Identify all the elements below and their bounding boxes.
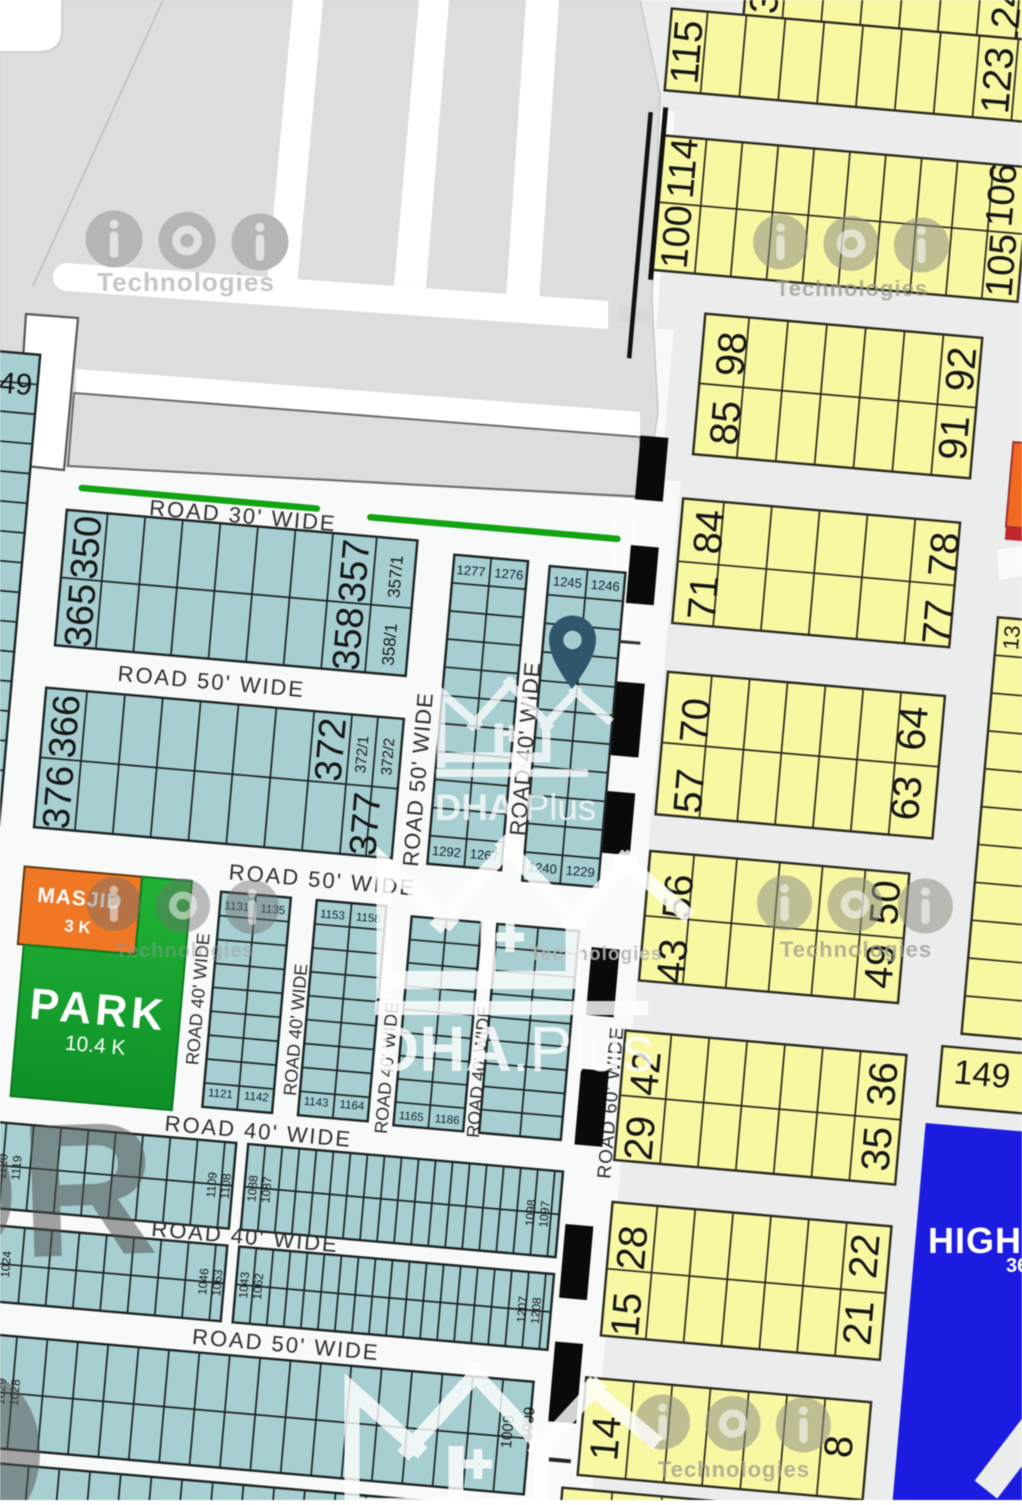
- svg-text:1208: 1208: [528, 1296, 544, 1324]
- svg-text:357: 357: [331, 538, 378, 605]
- svg-text:Technologies: Technologies: [115, 940, 254, 962]
- svg-text:29: 29: [616, 1114, 664, 1162]
- svg-text:1292: 1292: [431, 843, 461, 860]
- svg-text:Technologies: Technologies: [97, 267, 275, 297]
- svg-text:357/1: 357/1: [384, 555, 407, 599]
- svg-text:1164: 1164: [339, 1099, 365, 1113]
- svg-text:13: 13: [998, 624, 1022, 651]
- svg-text:1186: 1186: [434, 1113, 460, 1127]
- svg-text:36: 36: [859, 1060, 907, 1108]
- svg-text:372: 372: [308, 716, 355, 783]
- svg-text:1276: 1276: [494, 565, 524, 582]
- svg-text:149: 149: [952, 1053, 1012, 1096]
- svg-text:1063: 1063: [209, 1269, 225, 1297]
- svg-text:350: 350: [63, 514, 110, 581]
- svg-text:15: 15: [603, 1291, 651, 1339]
- svg-text:70: 70: [672, 696, 720, 744]
- svg-text:1229: 1229: [565, 863, 595, 880]
- svg-text:84: 84: [685, 508, 733, 556]
- svg-text:1087: 1087: [258, 1176, 274, 1204]
- svg-text:63: 63: [883, 774, 931, 822]
- svg-text:106: 106: [978, 162, 1022, 229]
- svg-text:1153: 1153: [320, 908, 346, 922]
- svg-text:Technologies: Technologies: [780, 937, 932, 962]
- svg-text:1097: 1097: [536, 1200, 552, 1228]
- svg-text:3 K: 3 K: [64, 916, 93, 937]
- svg-text:DHA.Plus: DHA.Plus: [373, 1013, 654, 1085]
- svg-text:1246: 1246: [590, 577, 620, 594]
- svg-text:1245: 1245: [552, 573, 582, 590]
- svg-text:28: 28: [609, 1224, 657, 1272]
- svg-text:Technologies: Technologies: [529, 944, 662, 965]
- svg-text:372/2: 372/2: [378, 737, 398, 776]
- svg-text:115: 115: [662, 18, 711, 85]
- svg-text:114: 114: [660, 136, 707, 200]
- svg-text:1277: 1277: [456, 562, 486, 579]
- svg-text:377: 377: [342, 791, 389, 858]
- svg-text:365: 365: [57, 582, 104, 649]
- svg-text:Technologies: Technologies: [658, 1457, 810, 1482]
- svg-text:358: 358: [325, 605, 372, 672]
- svg-text:358/1: 358/1: [378, 622, 401, 666]
- svg-text:71: 71: [680, 574, 728, 622]
- svg-text:92: 92: [938, 345, 986, 393]
- svg-text:OR: OR: [0, 1082, 160, 1304]
- svg-text:78: 78: [920, 530, 968, 578]
- svg-text:49: 49: [0, 366, 34, 402]
- svg-text:1143: 1143: [303, 1096, 329, 1110]
- svg-text:91: 91: [931, 414, 979, 462]
- svg-text:1108: 1108: [218, 1172, 234, 1199]
- svg-text:85: 85: [702, 399, 750, 447]
- svg-text:366: 366: [42, 693, 89, 760]
- svg-text:98: 98: [708, 330, 756, 378]
- svg-text:77: 77: [914, 598, 962, 646]
- svg-text:21: 21: [835, 1299, 883, 1347]
- svg-text:1165: 1165: [398, 1110, 424, 1124]
- svg-text:57: 57: [666, 767, 714, 815]
- svg-text:Technologies: Technologies: [776, 276, 928, 301]
- svg-text:376: 376: [35, 764, 82, 831]
- svg-text:1121: 1121: [208, 1087, 234, 1101]
- svg-text:105: 105: [978, 232, 1022, 299]
- svg-text:100: 100: [654, 204, 701, 271]
- svg-text:DHA.Plus: DHA.Plus: [435, 787, 596, 828]
- svg-text:372/1: 372/1: [352, 735, 372, 774]
- svg-text:123: 123: [973, 45, 1022, 115]
- svg-text:36: 36: [1006, 1255, 1022, 1277]
- svg-text:1142: 1142: [243, 1090, 269, 1104]
- svg-text:64: 64: [889, 704, 937, 752]
- svg-text:22: 22: [841, 1232, 889, 1280]
- svg-text:35: 35: [853, 1125, 901, 1173]
- svg-text:1062: 1062: [250, 1272, 266, 1300]
